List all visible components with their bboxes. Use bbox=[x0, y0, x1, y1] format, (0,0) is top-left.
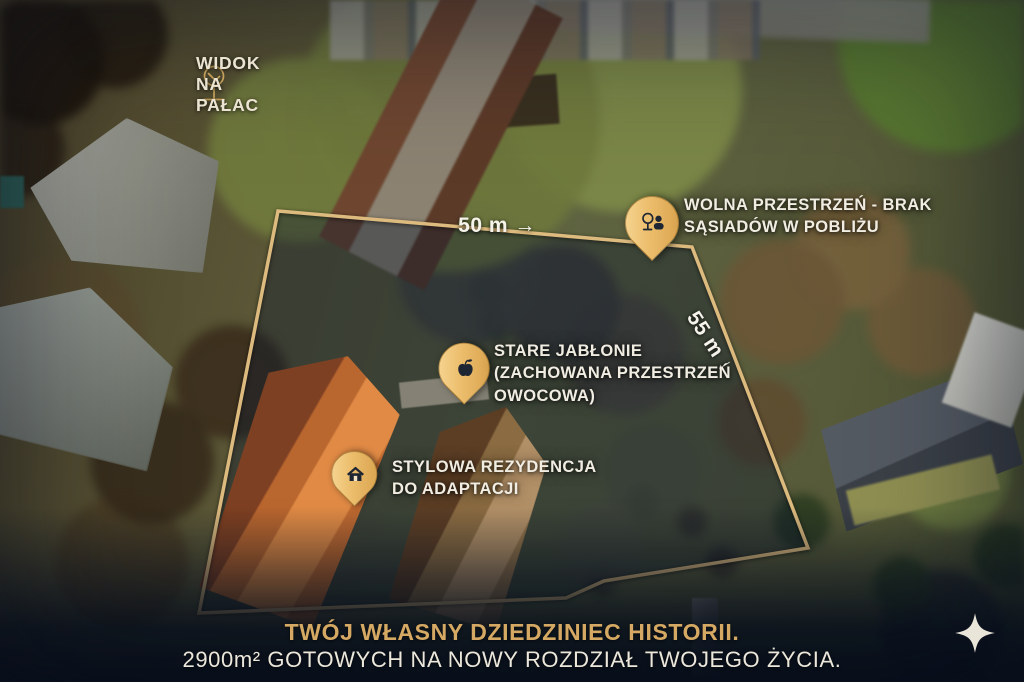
marker-open-space bbox=[614, 190, 690, 278]
sparkle-logo bbox=[953, 611, 997, 655]
marker-orchard bbox=[428, 337, 500, 421]
view-label-text: WIDOK NA PAŁAC bbox=[196, 53, 260, 116]
residence-label: STYLOWA REZYDENCJA DO ADAPTACJI bbox=[392, 456, 597, 501]
caption-headline: TWÓJ WŁASNY DZIEDZINIEC HISTORII. bbox=[0, 619, 1024, 646]
orchard-label: STARE JABŁONIE (ZACHOWANA PRZESTRZEŃ OWO… bbox=[494, 340, 731, 407]
apple-pin-icon bbox=[428, 332, 501, 405]
caption-subheadline: 2900m² GOTOWYCH NA NOWY ROZDZIAŁ TWOJEGO… bbox=[0, 647, 1024, 673]
house-pin-icon bbox=[322, 442, 387, 507]
park-pin-icon bbox=[614, 185, 690, 261]
dimension-top-50m: 50 m → bbox=[432, 214, 562, 238]
real-estate-aerial-graphic: WIDOK NA PAŁAC 50 m → 55 m ↓ WOLNA PRZES… bbox=[0, 0, 1024, 682]
marker-residence bbox=[322, 446, 387, 521]
open-space-label: WOLNA PRZESTRZEŃ - BRAK SĄSIADÓW W POBLI… bbox=[684, 194, 932, 239]
